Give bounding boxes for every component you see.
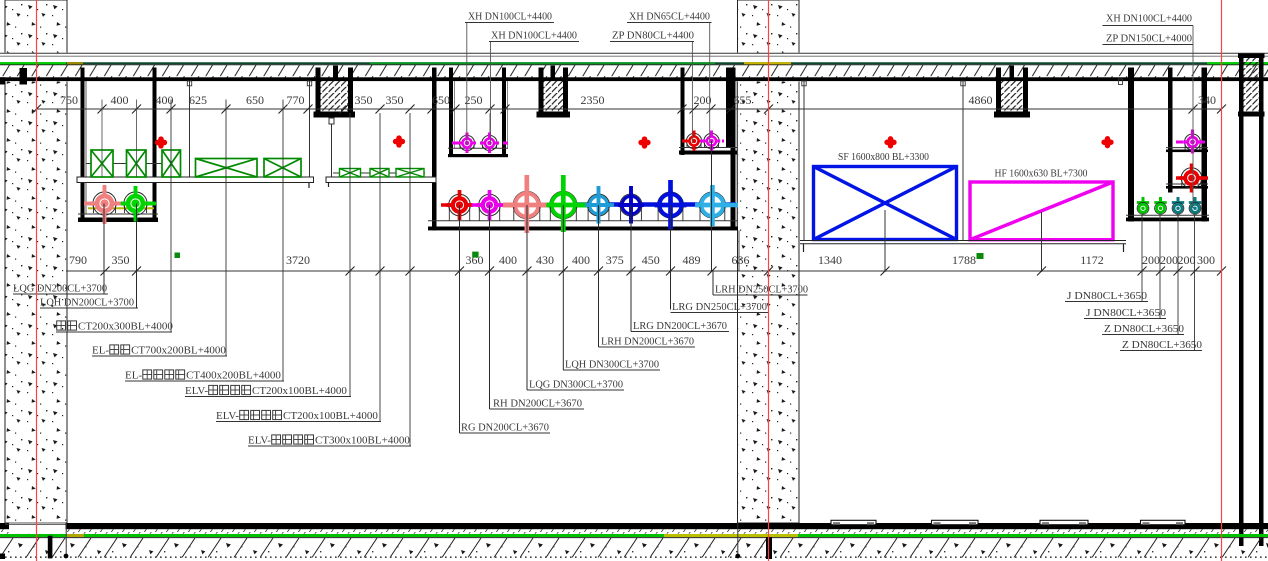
svg-text:ELV-: ELV- (216, 410, 239, 422)
svg-text:ZP DN150CL+4000: ZP DN150CL+4000 (1106, 33, 1192, 45)
svg-text:430: 430 (536, 253, 554, 267)
svg-text:LQG DN200CL+3700: LQG DN200CL+3700 (13, 283, 107, 295)
svg-text:200: 200 (1160, 253, 1178, 267)
svg-text:HF 1600x630 BL+7300: HF 1600x630 BL+7300 (995, 169, 1088, 180)
svg-text:XH DN100CL+4400: XH DN100CL+4400 (1106, 13, 1192, 25)
svg-text:SF 1600x800 BL+3300: SF 1600x800 BL+3300 (838, 152, 929, 163)
svg-text:EL-: EL- (92, 345, 109, 357)
svg-text:350: 350 (386, 93, 404, 107)
svg-text:1788: 1788 (952, 253, 976, 267)
svg-text:CT200x100BL+4000: CT200x100BL+4000 (283, 410, 378, 422)
svg-text:CT400x200BL+4000: CT400x200BL+4000 (186, 370, 281, 382)
svg-text:CT300x100BL+4000: CT300x100BL+4000 (315, 435, 410, 447)
svg-text:350: 350 (112, 253, 130, 267)
svg-text:RG DN200CL+3670: RG DN200CL+3670 (461, 422, 549, 434)
svg-text:400: 400 (111, 93, 129, 107)
svg-text:489: 489 (683, 253, 701, 267)
svg-text:LQH DN200CL+3700: LQH DN200CL+3700 (40, 297, 134, 309)
svg-text:300: 300 (1197, 253, 1215, 267)
svg-text:RH DN200CL+3670: RH DN200CL+3670 (493, 398, 582, 410)
svg-text:200: 200 (1142, 253, 1160, 267)
svg-text:400: 400 (572, 253, 590, 267)
svg-text:CT700x200BL+4000: CT700x200BL+4000 (131, 345, 226, 357)
svg-text:400: 400 (499, 253, 517, 267)
svg-text:ELV-: ELV- (185, 385, 208, 397)
svg-text:ELV-: ELV- (248, 435, 271, 447)
svg-text:Z DN80CL+3650: Z DN80CL+3650 (1104, 323, 1185, 335)
svg-text:Z DN80CL+3650: Z DN80CL+3650 (1122, 339, 1203, 351)
svg-text:CT200x300BL+4000: CT200x300BL+4000 (78, 321, 173, 333)
svg-text:200: 200 (1178, 253, 1196, 267)
svg-text:LQG DN300CL+3700: LQG DN300CL+3700 (529, 379, 623, 391)
svg-text:XH DN65CL+4400: XH DN65CL+4400 (629, 11, 710, 23)
svg-text:340: 340 (1198, 93, 1216, 107)
svg-text:790: 790 (69, 253, 87, 267)
svg-text:1340: 1340 (818, 253, 842, 267)
svg-text:770: 770 (287, 93, 305, 107)
svg-text:XH DN100CL+4400: XH DN100CL+4400 (468, 11, 552, 23)
svg-text:LRH DN250CL+3700: LRH DN250CL+3700 (715, 284, 808, 296)
svg-text:750: 750 (60, 93, 78, 107)
svg-text:EL-: EL- (125, 370, 142, 382)
svg-text:2350: 2350 (581, 93, 605, 107)
svg-text:450: 450 (642, 253, 660, 267)
svg-text:J DN80CL+3650: J DN80CL+3650 (1067, 290, 1148, 302)
svg-text:3720: 3720 (286, 253, 310, 267)
svg-text:LRG DN200CL+3670: LRG DN200CL+3670 (633, 320, 727, 332)
svg-text:ZP DN80CL+4400: ZP DN80CL+4400 (612, 30, 694, 42)
svg-text:LQH DN300CL+3700: LQH DN300CL+3700 (565, 359, 659, 371)
svg-text:625: 625 (189, 93, 207, 107)
svg-text:655: 655 (734, 93, 752, 107)
svg-text:650: 650 (246, 93, 264, 107)
svg-text:LRG DN250CL+3700: LRG DN250CL+3700 (672, 301, 767, 313)
svg-text:XH DN100CL+4400: XH DN100CL+4400 (491, 30, 577, 42)
svg-text:650: 650 (432, 93, 450, 107)
svg-text:1172: 1172 (1080, 253, 1104, 267)
svg-text:J DN80CL+3650: J DN80CL+3650 (1086, 307, 1167, 319)
svg-text:LRH DN200CL+3670: LRH DN200CL+3670 (601, 336, 694, 348)
svg-text:200: 200 (694, 93, 712, 107)
svg-text:4860: 4860 (969, 93, 993, 107)
svg-text:636: 636 (732, 253, 750, 267)
svg-text:350: 350 (355, 93, 373, 107)
svg-text:CT200x100BL+4000: CT200x100BL+4000 (252, 385, 347, 397)
svg-text:375: 375 (606, 253, 624, 267)
